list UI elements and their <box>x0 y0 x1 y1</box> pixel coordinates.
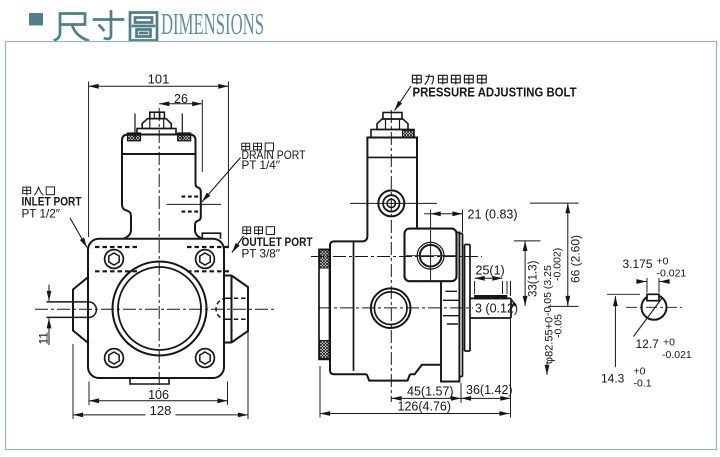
svg-text:+0: +0 <box>663 337 675 349</box>
svg-text:66 (2.60): 66 (2.60) <box>569 235 583 283</box>
svg-text:PT 1/4′′: PT 1/4′′ <box>242 159 281 172</box>
svg-text:11: 11 <box>37 332 51 345</box>
svg-text:-0.002): -0.002) <box>552 248 564 281</box>
svg-text:33(1.3): 33(1.3) <box>528 260 540 297</box>
svg-text:21 (0.83): 21 (0.83) <box>468 208 518 222</box>
svg-text:DIMENSIONS: DIMENSIONS <box>161 6 264 41</box>
svg-text:3 (0.12): 3 (0.12) <box>475 302 518 316</box>
svg-text:14.3: 14.3 <box>601 372 625 386</box>
svg-text:101: 101 <box>148 72 170 87</box>
svg-text:PT 3/8′′: PT 3/8′′ <box>242 248 281 261</box>
svg-text:3.175: 3.175 <box>623 257 653 271</box>
svg-text:26: 26 <box>174 92 188 106</box>
svg-text:+0: +0 <box>657 256 669 268</box>
svg-text:-0.021: -0.021 <box>657 268 687 280</box>
svg-text:12.7: 12.7 <box>636 337 660 351</box>
svg-text:126(4.76): 126(4.76) <box>398 400 452 414</box>
svg-text:45(1.57): 45(1.57) <box>407 385 454 399</box>
svg-text:-0.021: -0.021 <box>662 349 692 361</box>
svg-text:-0.05: -0.05 <box>553 314 565 338</box>
svg-text:36(1.42): 36(1.42) <box>466 383 513 397</box>
svg-text:+0: +0 <box>634 366 646 378</box>
svg-text:PRESSURE ADJUSTING BOLT: PRESSURE ADJUSTING BOLT <box>413 85 577 100</box>
svg-text:PT 1/2′′: PT 1/2′′ <box>22 208 61 221</box>
svg-text:128: 128 <box>150 403 172 418</box>
svg-text:106: 106 <box>148 388 169 402</box>
svg-text:25(1): 25(1) <box>476 264 505 278</box>
svg-text:-0.1: -0.1 <box>634 378 652 390</box>
